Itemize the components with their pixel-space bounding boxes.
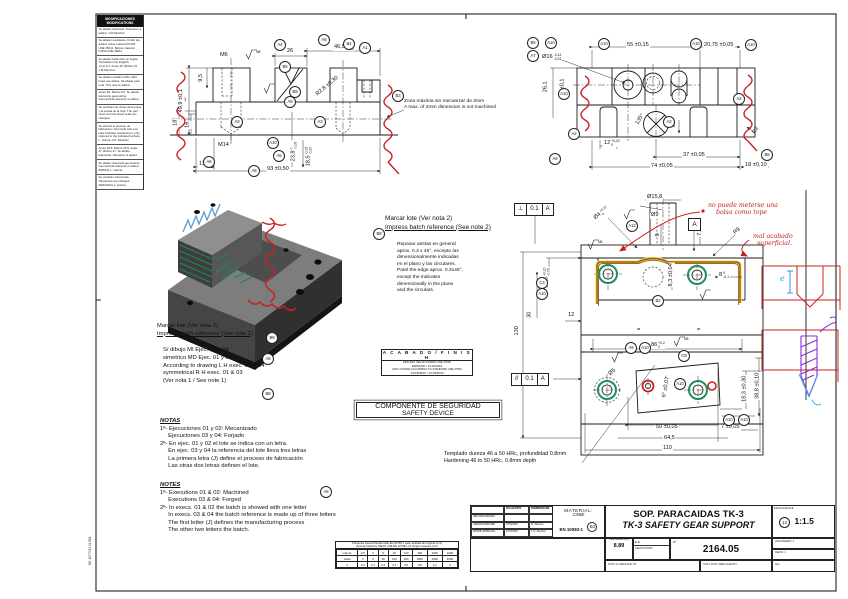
titleblock-count: E.E. CANT./COUNT. [633, 538, 670, 560]
titleblock-material: MATERIAL: C55E EN 10083-1 B3 [552, 505, 605, 538]
balloon-a10: A10 [723, 414, 735, 426]
dim-50: 50 ±0,05 [655, 425, 679, 431]
balloon-a7: A7 [527, 50, 539, 62]
titleblock-signatures: FECHA/DATE NOMBRE/NAME DIBUJADO/DRAWN CR… [470, 505, 553, 538]
notes-block: NOTES 1ª- Executions 01 & 02: Machined E… [160, 482, 336, 535]
hand-sketch-slot-blue [787, 271, 793, 293]
dim-16: 16 [185, 121, 191, 129]
dim-23-8: 23,80-0,05 [290, 141, 297, 163]
balloon-b5: B5 [761, 149, 773, 161]
titleblock-title: SOP. PARACAIDAS TK-3 TK-3 SAFETY GEAR SU… [605, 505, 772, 538]
handwritten-note-1: no puede meterse una bolsa como tope [708, 203, 778, 217]
balloon-a3: A3 [231, 116, 243, 128]
balloon-b8: B8 [262, 388, 274, 400]
handwritten-note-2: mal acabado superficial. [753, 234, 793, 248]
dim-130: 130 [515, 325, 521, 336]
notas-block: NOTAS 1ª- Ejecuciones 01 y 02: Mecanizad… [160, 418, 306, 471]
part-title-en: TK-3 SAFETY GEAR SUPPORT [606, 520, 771, 530]
balloon-b3-material: B3 [587, 522, 597, 532]
balloon-a9: A9 [625, 342, 637, 354]
titleblock-replaced-by: SUST. POR / REPLACED BY: [700, 560, 772, 572]
dim-o9: Ø9 [650, 213, 659, 219]
revision-entry: Se añaden taladros Ø12. Ø12 holes are ad… [97, 75, 143, 90]
templado-note: Templado dureza 46 a 50 HRc, profundidad… [444, 451, 566, 466]
revision-entry: Se cambian tolerancias. Tolerances are c… [97, 175, 143, 190]
dim-38-8: 38,8 ±0,10 [755, 372, 761, 400]
roughness-n8: N8 [684, 337, 688, 341]
sig-header-name: NOMBRE/NAME [529, 506, 554, 514]
fcf-parallelism: //0.1A [511, 373, 549, 386]
sig-row-date [504, 514, 529, 522]
dim-64-5: 64,5 [663, 436, 676, 442]
sig-row-label: APROB./APPROVAL [471, 529, 504, 537]
balloon-a2: A2 [733, 93, 745, 105]
revision-header: MODIFICACIONESMODIFICATIONS [97, 15, 143, 27]
part-title-es: SOP. PARACAIDAS TK-3 [606, 509, 771, 520]
view-top-right-dims [550, 47, 769, 170]
balloon-scale: 13 [779, 517, 790, 528]
balloon-a10: A10 [674, 378, 686, 390]
balloon-a10: A10 [267, 137, 279, 149]
sig-row-label: DIBUJADO/DRAWN [471, 514, 504, 522]
dim-o15-8: Ø15,8 [646, 195, 663, 201]
fcf-perpendicularity: ⊥0.1A [514, 203, 554, 216]
marcar-lote-note-mid: Marcar lote (Ver nota 2) Impress batch r… [385, 215, 491, 232]
sig-row-date: 27/04/2007 [504, 529, 529, 537]
titleblock-sheet: HOJA/SHEET: 1 [772, 538, 835, 549]
dim-m14: M14 [217, 143, 230, 149]
marcar-lote-note-left: Marcar lote (Ver nota 2) Impress batch r… [157, 323, 253, 338]
balloon-b5: B5 [527, 37, 539, 49]
roughness-n8: N8 [598, 240, 602, 244]
dim-86: 86+0,20 [650, 342, 666, 349]
titleblock-of: DE/OF: 1 [772, 549, 835, 560]
balloon-c8: C8 [678, 350, 690, 362]
repasar-note: Repasar aristas en general aprox. 0.3 x … [397, 242, 463, 295]
balloon-a6: A6 [203, 156, 215, 168]
revision-entry: Se elimina el proceso de fabricación. El… [97, 123, 143, 145]
dim-18-5: 18,5-0,05-0,20 [305, 146, 312, 168]
balloon-a5: A5 [273, 150, 285, 162]
dim-26-1: 26,1 [544, 80, 550, 93]
balloon-b2: B2 [652, 295, 664, 307]
balloon-a10: A10 [598, 38, 610, 50]
revision-entry: Antes 25,5. Before 25,5. Antes 47. Befor… [97, 145, 143, 160]
hand-sketch-slot [762, 266, 840, 310]
balloon-a4: A4 [274, 39, 286, 51]
dim-110: 110 [662, 446, 673, 452]
balloon-a3: A3 [663, 116, 675, 128]
dim-8-3: 8,3 ±0,04 [669, 262, 675, 287]
handwritten-e-label: e [780, 275, 785, 284]
sig-row-name [529, 514, 554, 522]
dim-o16: Ø16-0,14-0,24 [541, 54, 562, 61]
dim-8: 80-0,1 [718, 272, 730, 279]
dim-49-9: 49,9 ±0,1 [179, 88, 185, 113]
dim-55: 55 ±0,15 [626, 43, 650, 49]
dim-26: 26 [286, 49, 294, 55]
balloon-a10: A10 [738, 414, 750, 426]
dim-equal-2: = [696, 328, 701, 334]
dim-18: 18 [173, 119, 179, 127]
drawing-sheet: MODIFICACIONESMODIFICATIONS Se añade tol… [0, 0, 848, 599]
titleblock-weight: PESO/WEIGHT(KG) 8.89 [605, 538, 633, 560]
sig-row-date: 27/04/2007 [504, 522, 529, 530]
note-2mm: Zona máxima sin mecanizar de 2mmA max. o… [404, 99, 496, 112]
datum-a: A [688, 218, 701, 231]
balloon-a8: A8 [318, 34, 330, 46]
revision-column: MODIFICACIONESMODIFICATIONS Se añade tol… [97, 15, 144, 190]
view-top-right-hidden [647, 72, 738, 90]
view-front-outline [581, 203, 763, 455]
balloon-a2: A2 [568, 128, 580, 140]
balloon-b4: B4 [343, 38, 355, 50]
safety-device-box: COMPONENTE DE SEGURIDAD SAFETY DEVICE [356, 402, 500, 418]
balloon-a8: A8 [320, 486, 332, 498]
finish-box: A C A B A D O / F I N I S H ZINCADO SEGÚ… [381, 349, 473, 376]
dim-18-tr: 18 ±0,10 [744, 163, 768, 169]
balloon-a10: A10 [558, 88, 570, 100]
balloon-a9: A9 [284, 96, 296, 108]
sheet-edge-code: NE 107 P/23 11 881 [88, 537, 92, 565]
balloon-b5: B5 [279, 61, 291, 73]
sig-header-date: FECHA/DATE [504, 506, 529, 514]
dim-20-75: 20,75 ±0,05 [703, 43, 735, 49]
revision-entry: Se añaden acabados. Finish are added. An… [97, 38, 143, 57]
sig-row-name: J. R. Sánchez [529, 529, 554, 537]
titleblock-empty-cell [470, 538, 605, 572]
revision-entry: Se añade traducción en ingles. Translati… [97, 56, 143, 75]
dim-12-fv: 12 [567, 313, 575, 319]
titleblock-scale: ESCALA/SCALE 13 1:1.5 [772, 505, 835, 538]
revision-entry: Se añade tolerancia geométrica. Geometri… [97, 160, 143, 175]
scale-value: 1:1.5 [794, 516, 813, 526]
dim-m6: M6 [219, 53, 229, 59]
dim-30: 30 [527, 311, 533, 319]
dim-18-3: 18,3 ±0,30 [742, 375, 748, 403]
general-tolerance-table: Tolerancia General Media UNE-EN 22768-1 … [335, 541, 459, 569]
balloon-a10: A10 [536, 288, 548, 300]
isometric-3d-view [168, 203, 342, 370]
dim-74: 74 ±0,05 [650, 164, 674, 170]
dim-12-tr: 12+0,020 [603, 140, 621, 147]
balloon-a10: A10 [545, 37, 557, 49]
balloon-a10: A10 [639, 342, 651, 354]
revision-entry: Se añade tolerancia. Tolerance is added.… [97, 27, 143, 38]
balloon-a10: A10 [690, 38, 702, 50]
hand-sketch-pin-red [762, 330, 838, 382]
dim-9: 9 [656, 232, 662, 237]
balloon-a12: A12 [626, 220, 638, 232]
dim-93: 93 ±0,50 [266, 167, 290, 173]
dim-37: 37 ±0,05 [682, 153, 706, 159]
revision-entry: Se cambian las vistas de la pieza y la e… [97, 105, 143, 124]
dim-9-5: 9,5 [199, 73, 205, 83]
drawing-number: 2164.05 [671, 544, 771, 555]
sdibujo-note: S/ dibujo MI Ejec. 02 y 04 simetrico MD … [163, 347, 265, 386]
sig-row-label: CREADO/CREATED [471, 522, 504, 530]
revision-entry: Antes R1. Before R1. Se añade tolerancia… [97, 90, 143, 105]
balloon-a8: A8 [262, 353, 274, 365]
balloon-a10: A10 [745, 39, 757, 51]
balloon-b8: B8 [373, 228, 385, 240]
titleblock-number: Nº 2164.05 [670, 538, 772, 560]
balloon-a1: A1 [359, 42, 371, 54]
titleblock-replace-to: SUST. A / REPLACE TO: [605, 560, 700, 572]
balloon-a8: A8 [248, 165, 260, 177]
dim-equal-1: = [636, 328, 641, 334]
roughness-n8: N8 [256, 50, 260, 54]
balloon-b8: B8 [266, 332, 278, 344]
titleblock-rev: Rev. [772, 560, 835, 572]
balloon-a9: A9 [549, 153, 561, 165]
balloon-b3: B3 [392, 90, 404, 102]
balloon-a3: A3 [314, 116, 326, 128]
sig-row-name: M. Sánchez [529, 522, 554, 530]
